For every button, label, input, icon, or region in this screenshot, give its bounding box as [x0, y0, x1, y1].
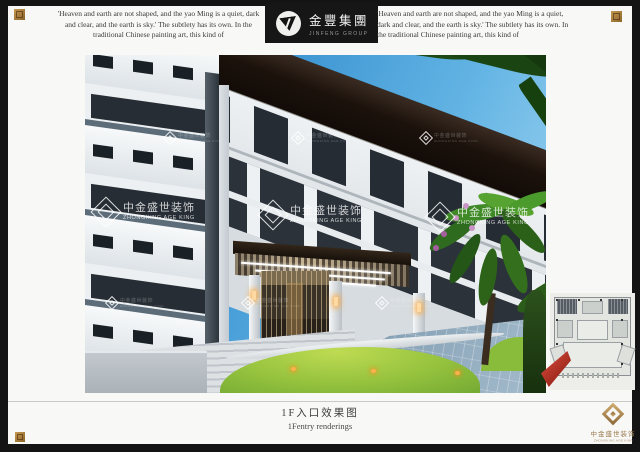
quote-text-left: 'Heaven and earth are not shaped, and th…: [52, 9, 265, 41]
watermark-diamond-icon: [375, 296, 389, 310]
watermark-diamond-icon: [257, 199, 288, 230]
brand-name-cn: 中金盛世装饰: [591, 428, 636, 438]
path-light: [455, 371, 460, 375]
company-name-cn: 金豐集團: [309, 10, 369, 29]
flower: [441, 231, 447, 237]
entry-rendering-image: 中金盛世装饰ZHONGKING AGE KING 中金盛世装饰ZHONGKING…: [85, 55, 546, 393]
plan-columns: [556, 299, 558, 301]
flower: [433, 245, 439, 251]
watermark-diamond-icon: [163, 131, 177, 145]
seal-stamp-icon: [15, 432, 25, 442]
brand-diamond-icon: [602, 403, 625, 426]
presentation-page: 'Heaven and earth are not shaped, and th…: [0, 0, 640, 452]
brand-name-en: ZHONGKING AGE KING: [594, 439, 633, 443]
jinfeng-logo-icon: [276, 11, 301, 36]
plan-room: [612, 320, 628, 338]
watermark: 中金盛世装饰ZHONGKING AGE KING: [107, 298, 164, 308]
watermark-diamond-icon: [424, 201, 455, 232]
path-light: [291, 367, 296, 371]
watermark-diamond-icon: [90, 196, 121, 227]
quote-text-right: 'Heaven and earth are not shaped, and th…: [377, 9, 577, 41]
watermark: 中金盛世装饰ZHONGKING AGE KING: [293, 133, 350, 143]
floor-plan-thumbnail: [550, 293, 635, 390]
caption: 1F入口效果图 1Fentry renderings: [0, 405, 640, 431]
watermark: 中金盛世装饰ZHONGKING AGE KING: [243, 298, 300, 308]
watermark: 中金盛世装饰ZHONGKING AGE KING: [377, 298, 434, 308]
pavement: [85, 351, 207, 393]
watermark: 中金盛世装饰ZHONGKING AGE KING: [421, 133, 478, 143]
plan-hall: [563, 342, 622, 368]
watermark-diamond-icon: [419, 131, 433, 145]
plan-room: [582, 301, 603, 314]
balcony-band: [85, 55, 219, 102]
plan-room-dark: [557, 299, 577, 314]
watermark: 中金盛世装饰ZHONGKING AGE KING: [95, 201, 195, 223]
watermark: 中金盛世装饰ZHONGKING AGE KING: [262, 204, 362, 226]
seal-stamp-icon: [14, 9, 25, 20]
balcony-band: [85, 119, 219, 192]
plan-room: [557, 320, 573, 338]
plan-landscape-dots: [562, 373, 622, 378]
caption-en: 1Fentry renderings: [0, 421, 640, 431]
company-name-en: JINFENG GROUP: [309, 31, 369, 37]
footer-divider: [8, 401, 632, 402]
caption-cn: 1F入口效果图: [0, 405, 640, 420]
watermark-diamond-icon: [241, 296, 255, 310]
plan-room-dark: [608, 299, 628, 314]
watermark: 中金盛世装饰ZHONGKING AGE KING: [429, 206, 529, 228]
shrub: [523, 290, 546, 393]
company-logo-box: 金豐集團 JINFENG GROUP: [265, 3, 378, 43]
wall-lamp: [334, 297, 338, 306]
seal-stamp-icon: [611, 11, 622, 22]
path-light: [371, 369, 376, 373]
brand-logo: 中金盛世装饰 ZHONGKING AGE KING: [586, 402, 640, 444]
watermark-diamond-icon: [291, 131, 305, 145]
watermark: 中金盛世装饰ZHONGKING AGE KING: [165, 133, 222, 143]
watermark-diamond-icon: [105, 296, 119, 310]
plan-hall: [577, 320, 608, 340]
